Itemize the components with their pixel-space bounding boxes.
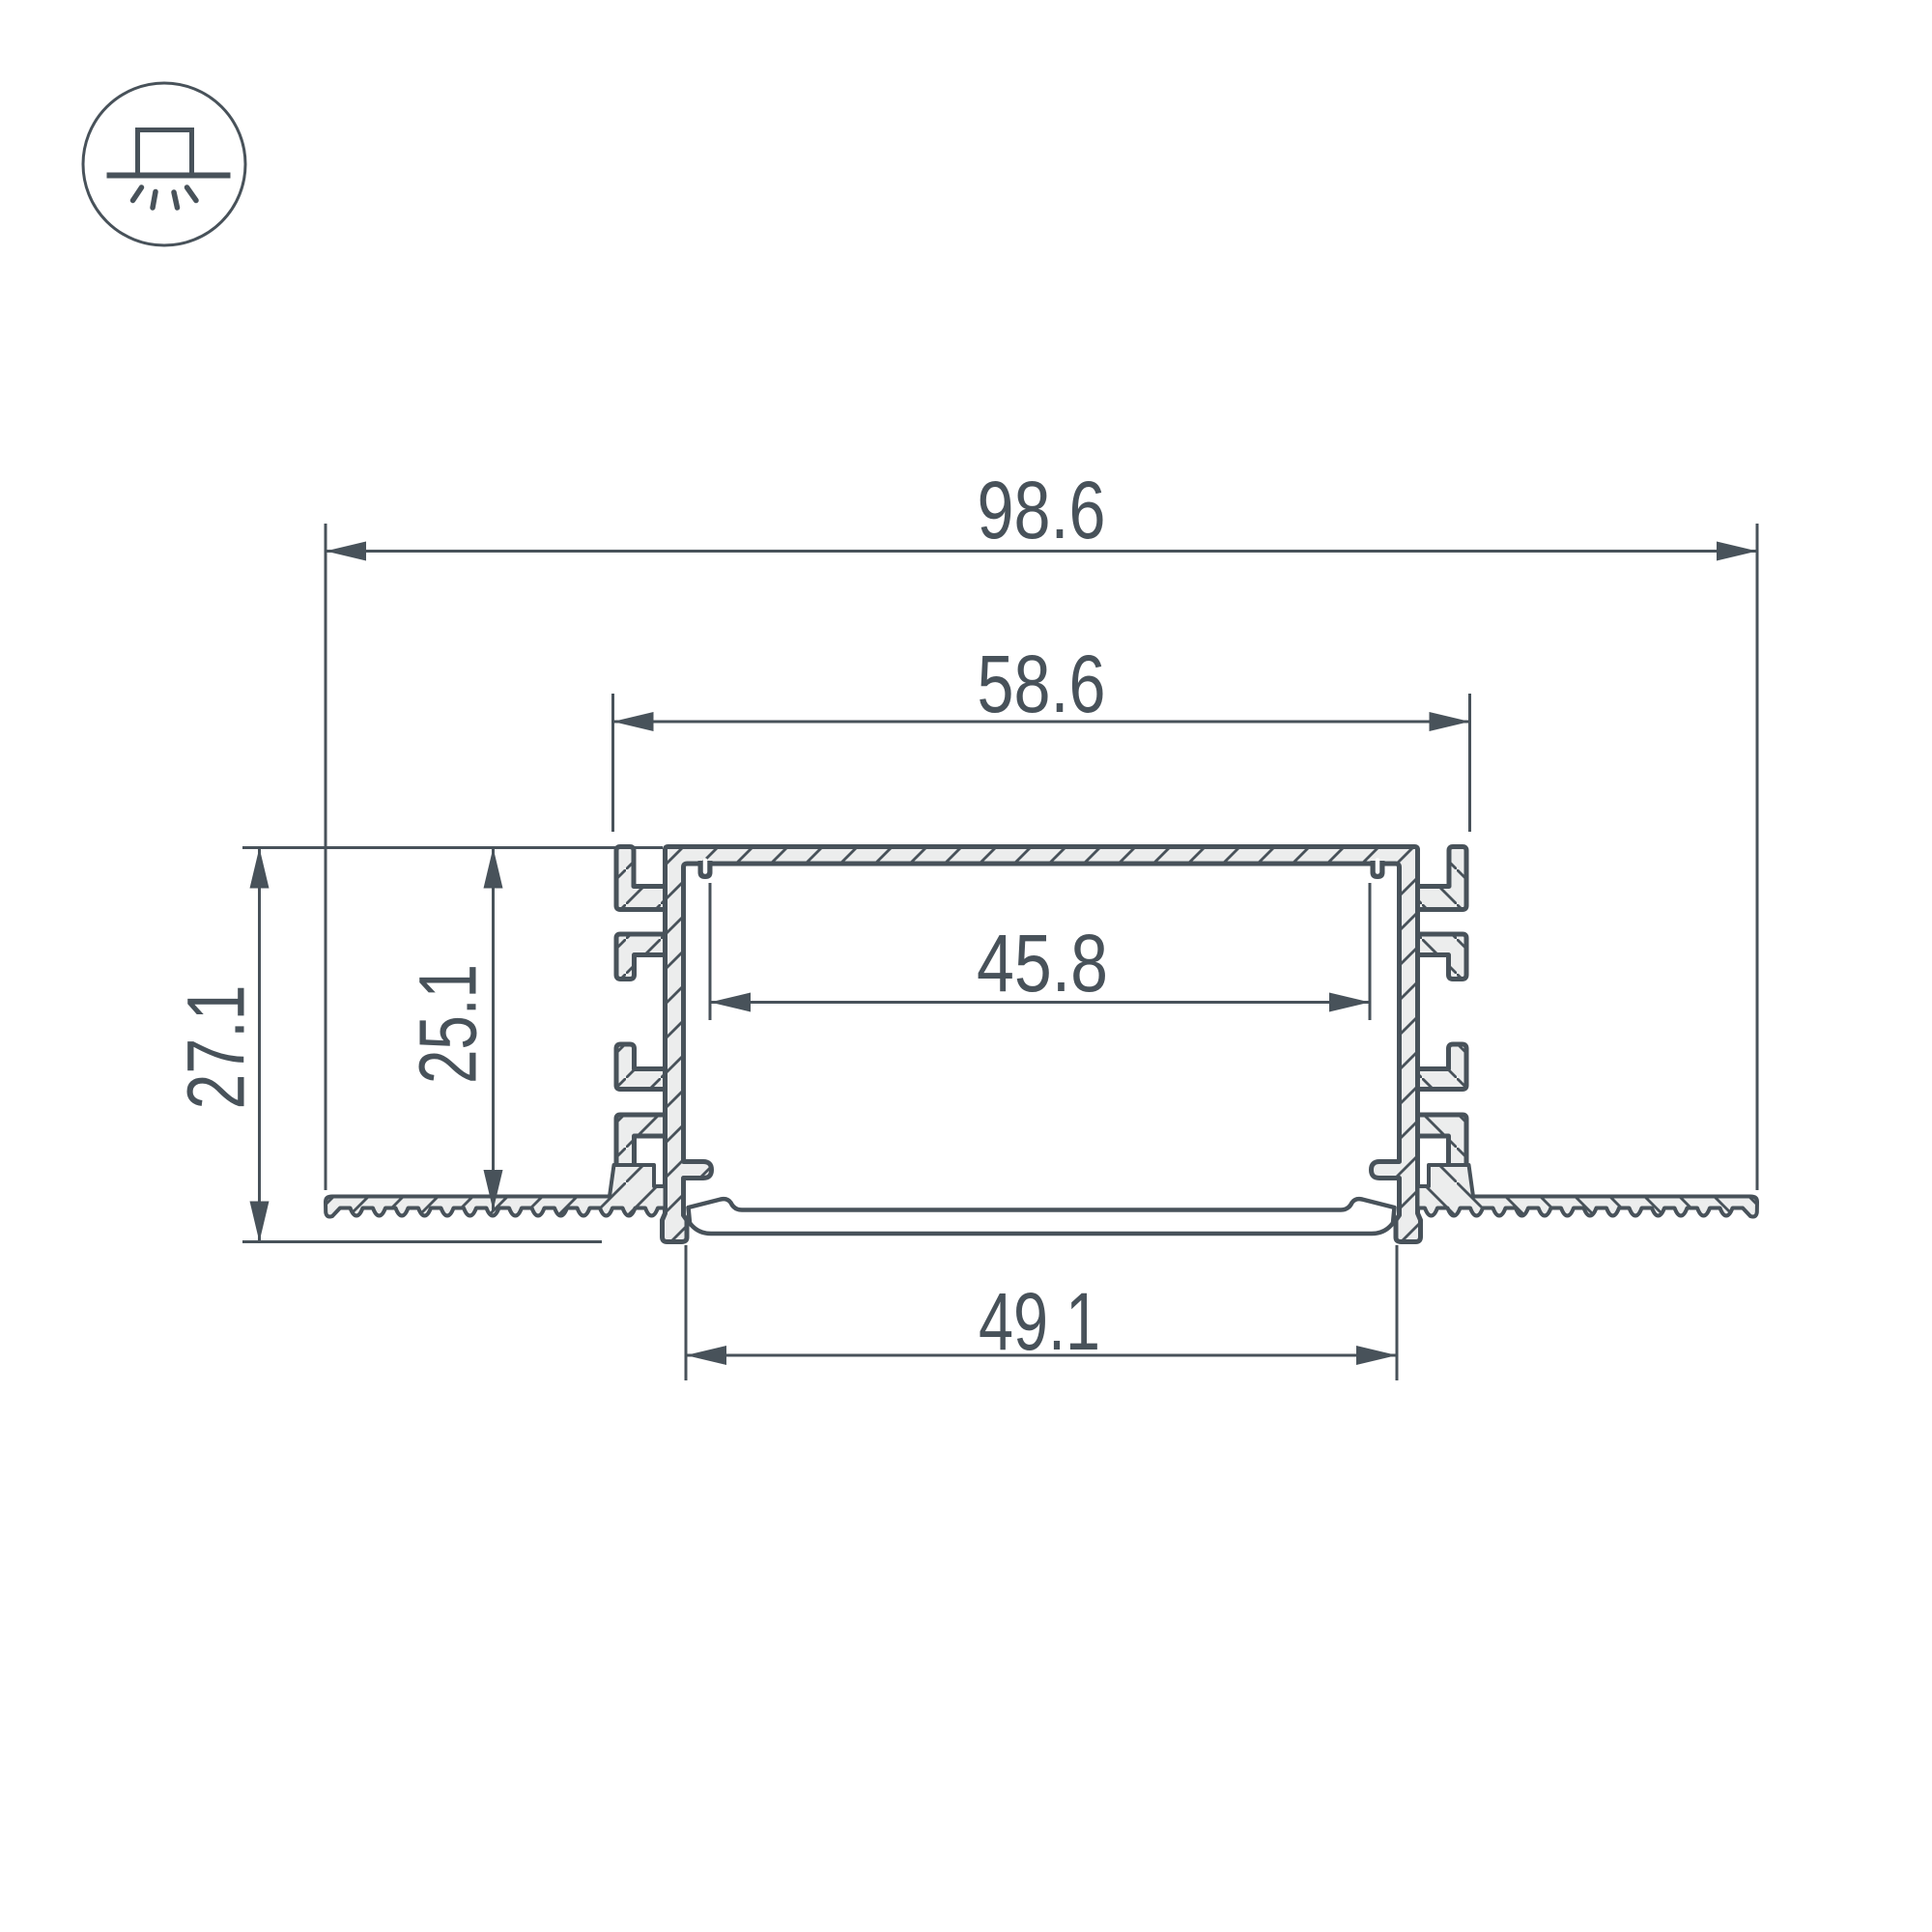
svg-text:98.6: 98.6 [978,465,1106,555]
svg-text:49.1: 49.1 [979,1276,1100,1367]
svg-text:25.1: 25.1 [403,964,494,1084]
svg-text:27.1: 27.1 [171,985,262,1110]
svg-text:45.8: 45.8 [977,918,1108,1009]
svg-text:58.6: 58.6 [978,639,1106,729]
